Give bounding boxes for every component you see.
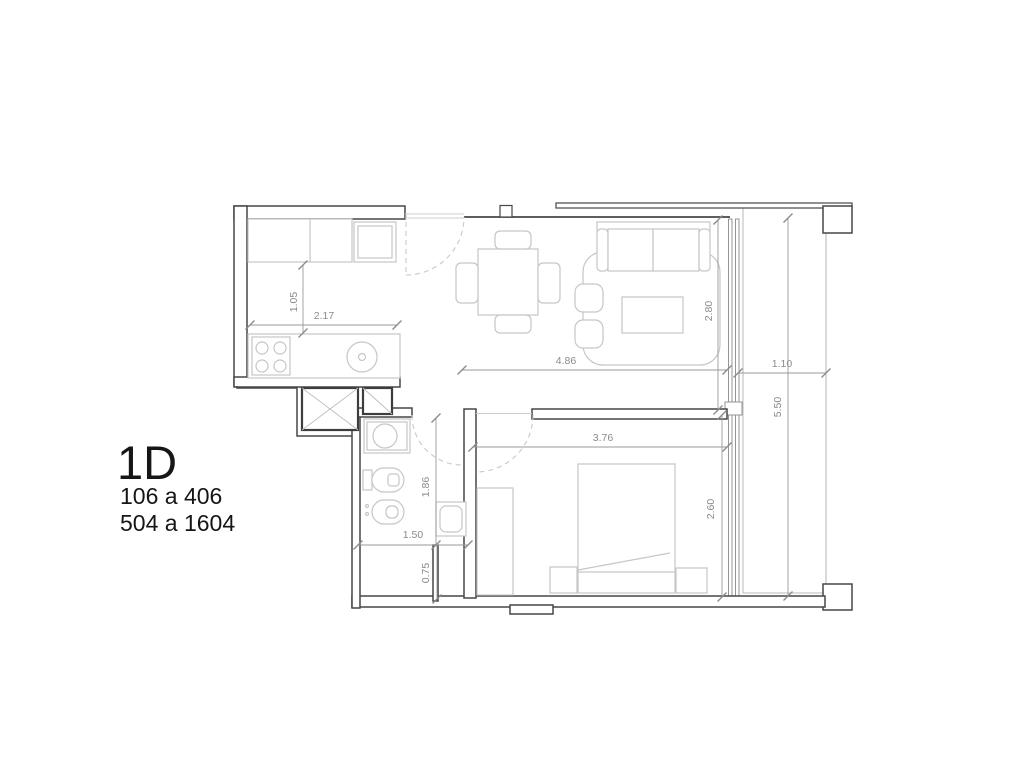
dim-balcony-width: 1.10: [772, 358, 793, 370]
dim-bathroom-width: 1.50: [403, 529, 424, 541]
floor-plan-drawing: 1.05 2.17 4.86 2.80 1.10 5.50 3.76: [0, 0, 1024, 768]
bidet-tap: [366, 513, 369, 516]
unit-code: 1D: [117, 436, 177, 489]
sofa-arm-right: [699, 229, 710, 271]
wall-bottom-step: [510, 605, 553, 614]
bathroom-door-swing: [412, 415, 462, 465]
balcony-deck: [743, 208, 826, 593]
bedroom-door-swing: [476, 415, 533, 472]
sofa-cushion: [608, 229, 653, 271]
pouf: [575, 284, 603, 312]
chair-left: [456, 263, 478, 303]
unit-label: 1D 106 a 406 504 a 1604: [117, 436, 235, 536]
dim-bedroom-width: 3.76: [593, 432, 614, 444]
dim-kitchen-width: 2.17: [314, 310, 335, 322]
bathroom: [363, 419, 466, 536]
dim-bathroom-extra: 0.75: [420, 563, 432, 584]
nightstand-right: [676, 568, 707, 593]
dim-living-depth: 2.80: [703, 301, 715, 322]
upper-cabinets: [248, 219, 352, 262]
bidet-tap: [366, 505, 369, 508]
dining-table: [478, 249, 538, 315]
wardrobe: [477, 488, 513, 595]
wall-corner-top-right: [823, 206, 852, 233]
kitchen: [248, 219, 400, 378]
chair-right: [538, 263, 560, 303]
dim-bathroom-length: 1.86: [420, 477, 432, 498]
dim-balcony-length: 5.50: [772, 397, 784, 418]
pouf: [575, 320, 603, 348]
unit-floors-line1: 106 a 406: [120, 483, 222, 509]
unit-floors-line2: 504 a 1604: [120, 510, 235, 536]
coffee-table: [622, 297, 683, 333]
wall-corner-bottom-right: [823, 584, 852, 610]
fridge-inner: [358, 226, 392, 258]
chair-top: [495, 231, 531, 249]
dim-kitchen-depth: 1.05: [288, 292, 300, 313]
sofa-arm-left: [597, 229, 608, 271]
chair-bottom: [495, 315, 531, 333]
toilet-tank: [363, 470, 372, 490]
wall-bathroom-left: [352, 412, 360, 608]
bidet: [372, 500, 404, 524]
floor-plan-page: 1.05 2.17 4.86 2.80 1.10 5.50 3.76: [0, 0, 1024, 768]
bedroom: [477, 464, 707, 595]
wall-kitchen-left: [234, 206, 247, 386]
wall-bottom: [352, 596, 825, 607]
dim-bedroom-depth: 2.60: [705, 499, 717, 520]
wall-kitchen-top: [234, 206, 405, 219]
wall-top-outer-band: [556, 203, 852, 208]
nightstand-left: [550, 567, 577, 593]
living-dining: [456, 222, 720, 365]
bed: [578, 464, 675, 593]
wall-bedroom-top: [532, 409, 727, 419]
sofa-cushion: [653, 229, 699, 271]
entry-door-swing: [406, 217, 464, 275]
dim-living-width: 4.86: [556, 355, 577, 367]
wall-column-bump: [500, 206, 512, 218]
